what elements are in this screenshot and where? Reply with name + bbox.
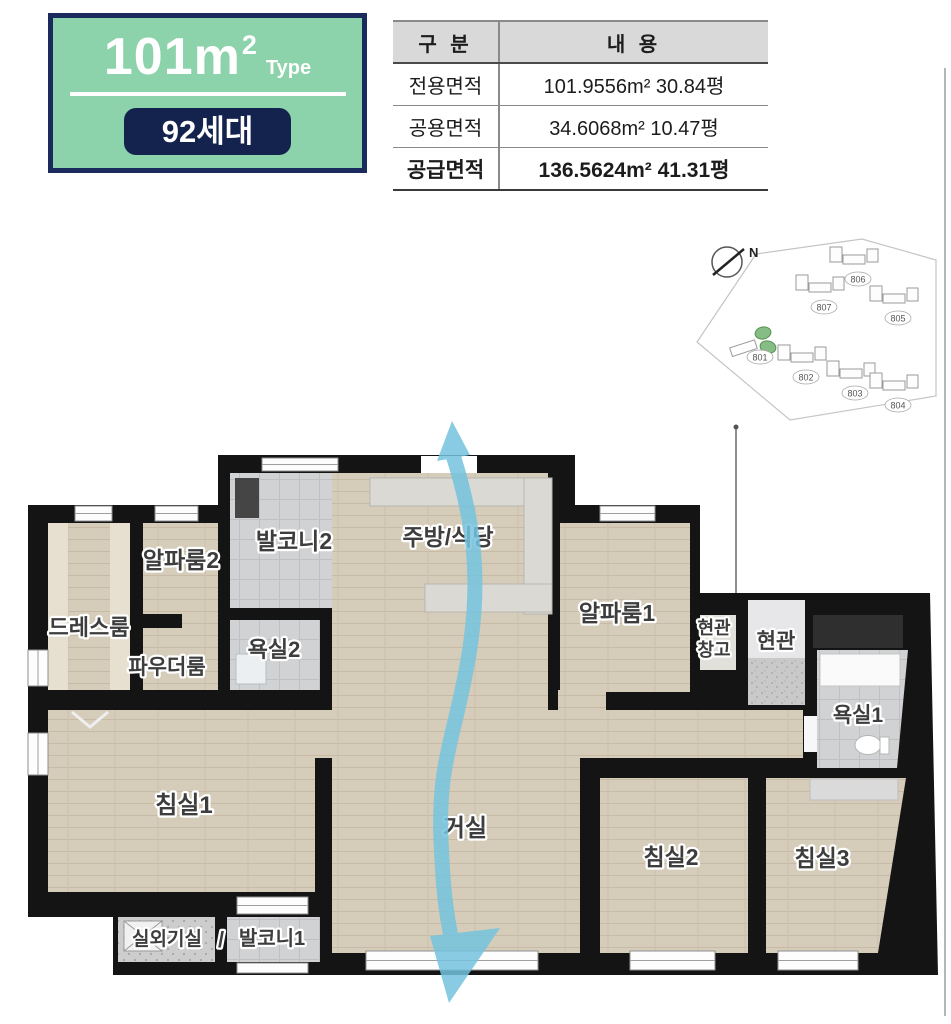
page: 101m2 Type 92세대 구 분 내 용 전용면적 101.9556m² …: [0, 0, 951, 1024]
building-807: 807: [796, 275, 844, 314]
room-label-balcony1: 발코니1: [239, 927, 305, 950]
room-label-bath1: 욕실1: [833, 704, 884, 727]
compass-n-label: N: [749, 245, 758, 260]
bath1-door: [804, 716, 817, 752]
dimension-dot: [734, 425, 739, 430]
room-label-dressroom: 드레스룸: [49, 615, 130, 640]
page-border: [944, 68, 946, 1016]
toilet-icon: [855, 736, 881, 755]
toilet-tank: [880, 737, 889, 754]
floor-plan: 드레스룸 알파룸2 발코니2 주방/식당 알파룸1 현관 창고 현관 욕실2 파…: [28, 421, 938, 1003]
building-label: 803: [847, 389, 862, 399]
room-label-balcony2: 발코니2: [256, 528, 332, 554]
room-label-bed1: 침실1: [155, 792, 213, 819]
interior-wall: [748, 762, 766, 953]
room-label-bed2: 침실2: [643, 844, 698, 870]
arrowhead-up: [437, 421, 470, 461]
building-805: 805: [870, 286, 918, 325]
room-label-bath2: 욕실2: [248, 637, 301, 662]
dressroom-closet: [48, 523, 68, 690]
room-label-ac: 실외기실: [132, 928, 202, 950]
bed3-closet: [810, 779, 898, 800]
building-label: 801: [752, 353, 767, 363]
dressroom-closet: [110, 523, 130, 690]
wall-stub: [140, 614, 182, 628]
label-slash: /: [218, 927, 224, 952]
room-label-living: 거실: [443, 815, 487, 842]
building-802: 802: [778, 345, 826, 384]
entry-wardrobe: [813, 615, 903, 648]
room-label-alpha2: 알파룸2: [143, 547, 219, 573]
interior-wall: [598, 762, 750, 778]
building-label: 802: [798, 373, 813, 383]
site-plan: N 807 806 805 801: [697, 239, 936, 420]
room-label-powder: 파우더룸: [128, 656, 205, 679]
passage-opening: [315, 710, 332, 758]
room-label-entry-storage-1: 현관: [697, 618, 731, 638]
building-label: 804: [890, 401, 905, 411]
bath1-tub: [820, 654, 900, 686]
room-label-bed3: 침실3: [794, 845, 849, 871]
building-801-highlighted: 801: [730, 325, 778, 364]
room-label-entry-storage-2: 창고: [697, 640, 730, 660]
interior-wall: [580, 762, 600, 953]
building-803: 803: [827, 361, 875, 400]
room-label-alpha1: 알파룸1: [579, 600, 655, 626]
entry-mat: [748, 658, 805, 705]
building-label: 806: [850, 275, 865, 285]
room-label-entry: 현관: [757, 630, 796, 653]
balcony2-unit: [235, 478, 259, 518]
building-label: 807: [816, 303, 831, 313]
door-opening: [558, 690, 606, 710]
kitchen-island: [425, 584, 552, 612]
interior-wall: [766, 762, 814, 778]
building-label: 805: [890, 314, 905, 324]
plan-graphic: N 807 806 805 801: [0, 0, 951, 1024]
